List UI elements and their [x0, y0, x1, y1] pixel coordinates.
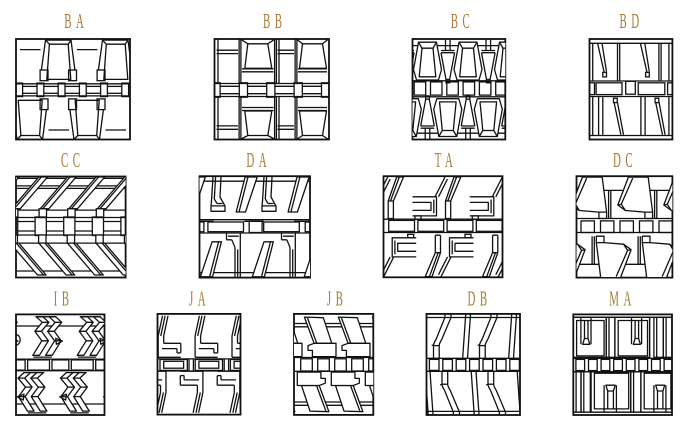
svg-text:CC: CC — [61, 148, 85, 172]
svg-text:IB: IB — [54, 287, 74, 311]
svg-text:TA: TA — [435, 148, 458, 172]
svg-text:JA: JA — [189, 287, 210, 311]
svg-text:BB: BB — [263, 9, 287, 33]
svg-text:MA: MA — [609, 287, 636, 311]
svg-text:BA: BA — [64, 9, 88, 33]
svg-text:BD: BD — [619, 9, 643, 33]
svg-text:DB: DB — [467, 287, 491, 311]
svg-text:JB: JB — [327, 287, 348, 311]
svg-text:DC: DC — [613, 148, 637, 172]
svg-text:DA: DA — [246, 148, 271, 172]
svg-text:BC: BC — [451, 9, 475, 33]
